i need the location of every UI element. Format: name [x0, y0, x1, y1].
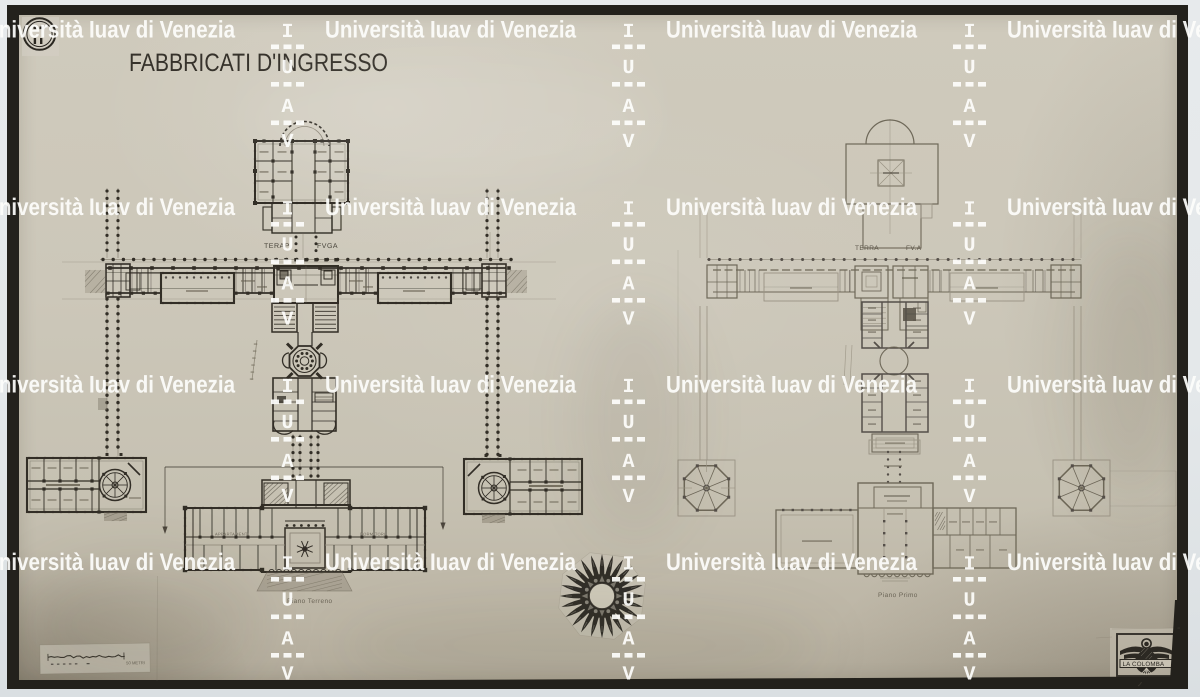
svg-text:A: A — [281, 629, 293, 652]
svg-text:Università Iuav di Venezia: Università Iuav di Venezia — [0, 549, 236, 576]
svg-text:Università Iuav di Venezia: Università Iuav di Venezia — [0, 372, 236, 399]
svg-text:Università Iuav di Venezia: Università Iuav di Venezia — [0, 194, 236, 221]
svg-text:I: I — [963, 554, 975, 577]
svg-text:A: A — [281, 96, 293, 119]
svg-text:V: V — [281, 664, 293, 687]
svg-text:V: V — [963, 664, 975, 687]
svg-text:V: V — [622, 486, 634, 509]
svg-text:V: V — [963, 309, 975, 332]
svg-text:I: I — [963, 376, 975, 399]
svg-text:I: I — [281, 199, 293, 222]
svg-text:I: I — [963, 199, 975, 222]
svg-text:Università Iuav di Venezia: Università Iuav di Venezia — [1007, 194, 1200, 221]
svg-text:V: V — [622, 309, 634, 332]
svg-text:U: U — [963, 590, 975, 613]
svg-text:Università Iuav di Venezia: Università Iuav di Venezia — [0, 17, 236, 44]
svg-text:Università Iuav di Venezia: Università Iuav di Venezia — [1007, 17, 1200, 44]
svg-text:A: A — [963, 96, 975, 119]
svg-text:A: A — [281, 274, 293, 297]
svg-text:U: U — [281, 235, 293, 258]
svg-text:V: V — [281, 486, 293, 509]
svg-text:Università Iuav di Venezia: Università Iuav di Venezia — [666, 372, 918, 399]
svg-text:I: I — [963, 21, 975, 44]
svg-text:Università Iuav di Venezia: Università Iuav di Venezia — [1007, 372, 1200, 399]
svg-text:V: V — [281, 131, 293, 154]
svg-text:V: V — [963, 486, 975, 509]
svg-text:I: I — [281, 376, 293, 399]
svg-text:I: I — [622, 21, 634, 44]
svg-text:V: V — [622, 664, 634, 687]
svg-text:A: A — [622, 629, 634, 652]
svg-text:U: U — [281, 590, 293, 613]
svg-text:I: I — [281, 554, 293, 577]
svg-text:Università Iuav di Venezia: Università Iuav di Venezia — [325, 372, 577, 399]
svg-text:U: U — [622, 57, 634, 80]
svg-text:A: A — [963, 274, 975, 297]
svg-text:A: A — [963, 629, 975, 652]
svg-text:A: A — [281, 451, 293, 474]
svg-text:U: U — [622, 590, 634, 613]
svg-text:I: I — [622, 554, 634, 577]
svg-text:A: A — [622, 274, 634, 297]
svg-text:I: I — [622, 199, 634, 222]
svg-text:Università Iuav di Venezia: Università Iuav di Venezia — [666, 194, 918, 221]
svg-text:Università Iuav di Venezia: Università Iuav di Venezia — [325, 549, 577, 576]
svg-text:U: U — [281, 412, 293, 435]
svg-text:A: A — [622, 451, 634, 474]
svg-text:U: U — [622, 235, 634, 258]
svg-text:V: V — [622, 131, 634, 154]
svg-text:U: U — [963, 235, 975, 258]
svg-text:A: A — [963, 451, 975, 474]
svg-text:Università Iuav di Venezia: Università Iuav di Venezia — [666, 549, 918, 576]
svg-text:U: U — [963, 57, 975, 80]
svg-text:Università Iuav di Venezia: Università Iuav di Venezia — [1007, 549, 1200, 576]
svg-text:I: I — [622, 376, 634, 399]
svg-text:Università Iuav di Venezia: Università Iuav di Venezia — [666, 17, 918, 44]
svg-text:U: U — [963, 412, 975, 435]
svg-text:U: U — [281, 57, 293, 80]
svg-text:U: U — [622, 412, 634, 435]
svg-text:A: A — [622, 96, 634, 119]
svg-text:V: V — [963, 131, 975, 154]
svg-text:Università Iuav di Venezia: Università Iuav di Venezia — [325, 194, 577, 221]
svg-text:Università Iuav di Venezia: Università Iuav di Venezia — [325, 17, 577, 44]
svg-text:I: I — [281, 21, 293, 44]
svg-text:V: V — [281, 309, 293, 332]
